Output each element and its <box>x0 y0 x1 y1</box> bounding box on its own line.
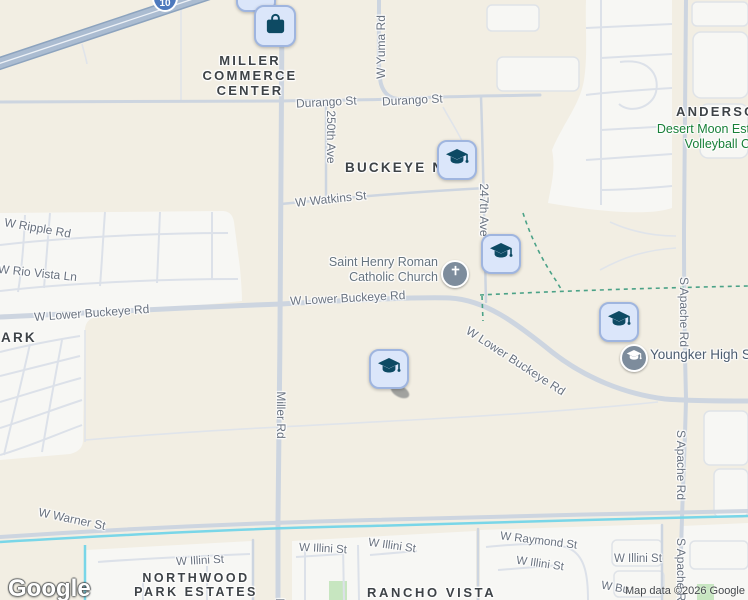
school-marker-247th[interactable] <box>481 234 521 274</box>
shopping-bag-icon <box>264 12 287 40</box>
cross-icon <box>448 264 463 284</box>
locality-label-northwood-park-estates: NORTHWOOD PARK ESTATES <box>120 571 272 599</box>
graduation-cap-icon <box>489 240 513 269</box>
church-badge[interactable] <box>441 260 469 288</box>
graduation-cap-icon <box>607 308 631 337</box>
locality-label-park: ARK <box>1 330 37 345</box>
graduation-cap-icon <box>626 348 642 369</box>
poi-label-desert-moon-volleyball[interactable]: Desert Moon Est Volleyball C <box>657 122 748 152</box>
street-label-w-illini-st-5: W Illini St <box>614 553 662 565</box>
google-logo[interactable]: Google <box>8 575 91 600</box>
street-label-s-apache-rd-2: S Apache Rd <box>674 425 688 505</box>
school-marker-lower-buckeye[interactable] <box>369 349 409 389</box>
street-label-miller-rd-bottom: Miller Rd <box>273 587 287 600</box>
street-label-s-apache-rd-1: S Apache Rd <box>677 272 691 352</box>
street-label-w-illini-st-2: W Illini St <box>299 542 347 556</box>
street-label-miller-rd: Miller Rd <box>274 380 288 450</box>
locality-label-rancho-vista: RANCHO VISTA <box>367 585 496 600</box>
poi-label-youngker-high-school[interactable]: Youngker High S <box>650 347 748 362</box>
street-label-w-illini-st-northwood: W Illini St <box>176 554 224 568</box>
graduation-cap-icon <box>445 146 469 175</box>
school-marker-buckeye[interactable] <box>437 140 477 180</box>
locality-label-anderson: ANDERSON <box>676 104 748 119</box>
poi-label-saint-henry-church[interactable]: Saint Henry Roman Catholic Church <box>329 255 438 284</box>
map-attribution: Map data ©2026 Google <box>625 585 745 597</box>
graduation-cap-icon <box>377 355 401 384</box>
locality-label-miller-commerce-center: MILLER COMMERCE CENTER <box>188 53 312 98</box>
street-label-250th-ave: 250th Ave <box>324 92 338 182</box>
street-label-w-yuma-rd: W Yuma Rd <box>374 0 388 97</box>
youngker-school-badge[interactable] <box>620 344 648 372</box>
highway-i10 <box>0 0 214 66</box>
shopping-marker[interactable] <box>254 5 296 47</box>
map-canvas[interactable]: 10 MILLER COMMERCE CENTER BUCKEYE NO AND… <box>0 0 748 600</box>
school-marker-apache[interactable] <box>599 302 639 342</box>
